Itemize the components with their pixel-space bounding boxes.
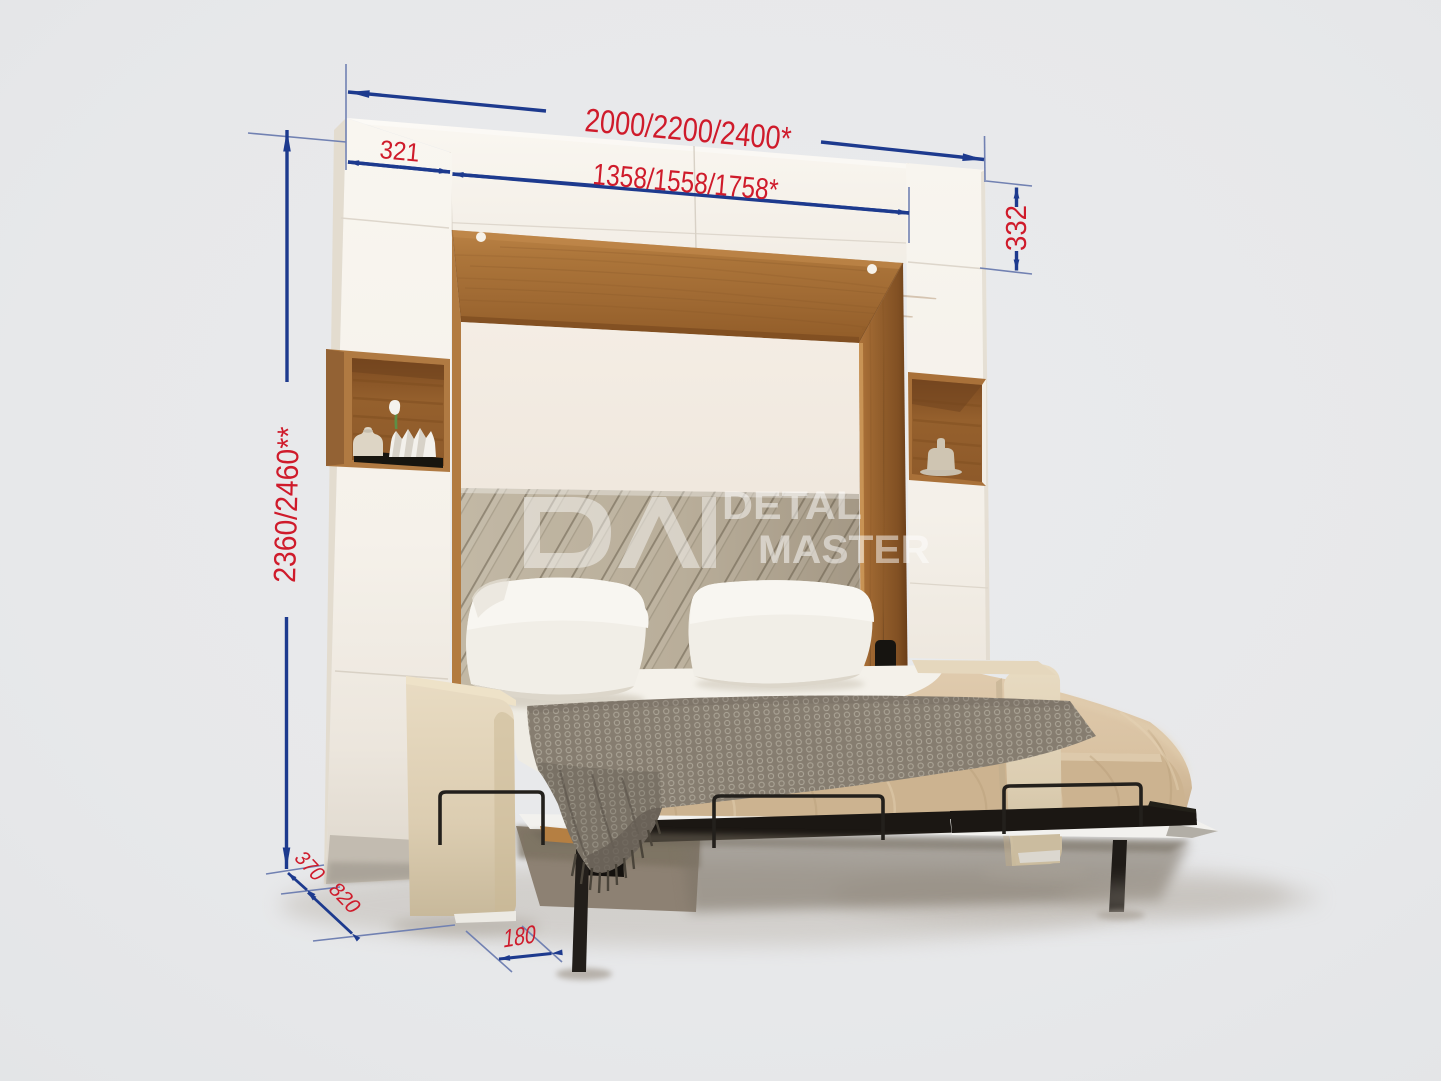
svg-text:180: 180 (502, 920, 537, 953)
svg-text:2360/2460**: 2360/2460** (267, 426, 306, 583)
svg-text:DETAL: DETAL (722, 484, 862, 528)
svg-text:321: 321 (378, 134, 421, 168)
svg-text:332: 332 (1001, 205, 1033, 251)
svg-text:MASTER: MASTER (758, 528, 930, 572)
